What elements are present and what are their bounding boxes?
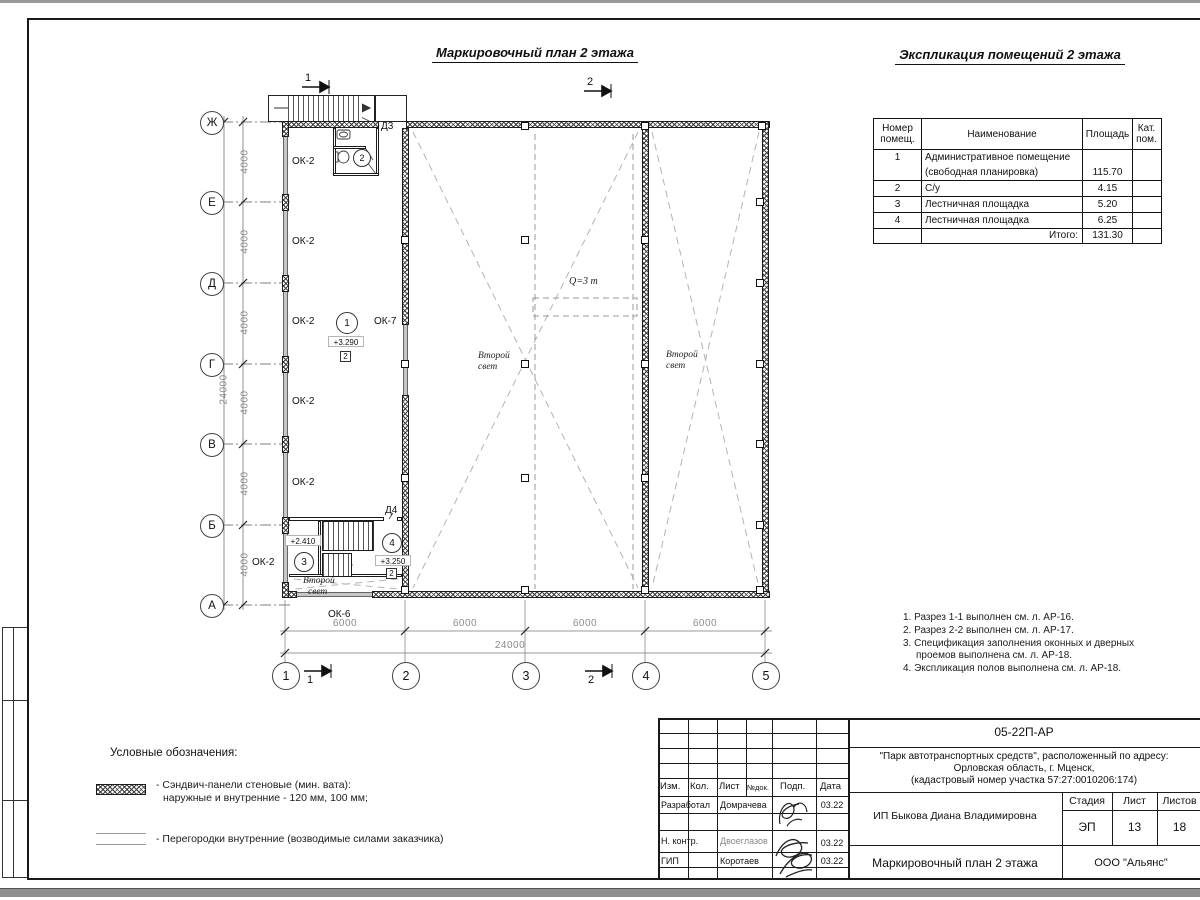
second-light-label: Второй [666, 350, 698, 360]
role-gip: ГИП [661, 856, 679, 866]
column [521, 360, 529, 368]
note-line: 4. Экспликация полов выполнена см. л. АР… [903, 663, 1200, 676]
room-tag-2: 2 [353, 149, 371, 167]
column [521, 586, 529, 594]
stage-value: ЭП [1062, 820, 1112, 834]
window-ok2 [283, 453, 288, 517]
dim-6000: 6000 [563, 618, 607, 629]
dim-total-horizontal: 24000 [488, 640, 532, 651]
titleblock-line [658, 830, 848, 831]
role-developer: Разработал [661, 800, 710, 810]
level-mark: +3.250 [375, 555, 411, 566]
column [521, 236, 529, 244]
section-mark-2: 2 [588, 674, 594, 686]
exterior-stair-treads [288, 95, 362, 122]
window-label-ok2: ОК-2 [292, 156, 315, 167]
stair-upper-flight [322, 521, 373, 551]
room-tag-4: 4 [382, 533, 402, 553]
column [756, 440, 764, 448]
floor-type-tag: 2 [386, 568, 397, 579]
signature-gip [776, 840, 812, 877]
notes-block: 1. Разрез 1-1 выполнен см. л. АР-16. 2. … [903, 612, 1200, 676]
wall-left-pier [282, 436, 289, 453]
axis-col-2: 2 [392, 662, 420, 690]
titleblock-line [1062, 810, 1200, 811]
titleblock-line [848, 792, 1200, 793]
axis-row-d: Д [200, 272, 224, 296]
column [641, 474, 649, 482]
legend-swatch-partition [96, 833, 146, 845]
window-label-ok2: ОК-2 [292, 236, 315, 247]
date-developer: 03.22 [816, 800, 848, 810]
dim-4000: 4000 [240, 220, 251, 264]
dim-6000: 6000 [683, 618, 727, 629]
header-list: Лист [719, 781, 740, 792]
titleblock-line [717, 718, 718, 880]
door-label-d3: Д3 [381, 121, 393, 132]
window-label-ok2: ОК-2 [252, 557, 275, 568]
titleblock-line [848, 845, 1200, 846]
column [401, 360, 409, 368]
company-name: ООО "Альянс" [1062, 857, 1200, 869]
project-line: "Парк автотранспортных средств", располо… [848, 751, 1200, 762]
col-header-num: Номерпомещ. [874, 119, 921, 149]
sink-icon [337, 130, 350, 139]
wall-bottom [372, 591, 770, 598]
column [641, 236, 649, 244]
axis-col-3: 3 [512, 662, 540, 690]
section-mark-1: 1 [307, 674, 313, 686]
table-total-row: Итого: 131.30 [874, 228, 1161, 243]
wall-left-pier [282, 356, 289, 373]
note-line: 1. Разрез 1-1 выполнен см. л. АР-16. [903, 612, 1200, 625]
name-developer: Домрачева [720, 800, 767, 810]
note-line: 2. Разрез 2-2 выполнен см. л. АР-17. [903, 625, 1200, 638]
header-sign: Подп. [780, 781, 805, 792]
axis-col-1: 1 [272, 662, 300, 690]
column [521, 122, 529, 130]
role-ncontrol: Н. контр. [661, 836, 698, 846]
wall-axis2-upper [402, 128, 409, 325]
axis-row-b: Б [200, 514, 224, 538]
drawing-title: Маркировочный план 2 этажа [848, 856, 1062, 870]
signature-developer [779, 803, 807, 826]
titleblock-line [658, 867, 848, 868]
column [401, 586, 409, 594]
legend-item-sandwich: - Сэндвич-панели стеновые (мин. вата): н… [156, 779, 368, 804]
column [641, 122, 649, 130]
dim-total-vertical: 24000 [219, 368, 230, 412]
room-tag-1: 1 [336, 312, 358, 334]
stairhall-partition-stub [397, 517, 402, 521]
level-mark: +2.410 [285, 535, 321, 546]
window-ok2 [283, 211, 288, 275]
level-mark: +3.290 [328, 336, 364, 347]
wall-top-right [406, 121, 770, 128]
axis-col-5: 5 [752, 662, 780, 690]
window-label-ok7: ОК-7 [374, 316, 397, 327]
project-line: (кадастровый номер участка 57:27:0010206… [848, 775, 1200, 786]
dim-4000: 4000 [240, 381, 251, 425]
window-label-ok2: ОК-2 [292, 316, 315, 327]
header-date: Дата [820, 781, 841, 792]
bathroom-wall-right [376, 128, 379, 176]
table-header-row: Номерпомещ. Наименование Площадь Кат.пом… [874, 119, 1161, 149]
window-label-ok2: ОК-2 [292, 396, 315, 407]
door-label-d4: Д4 [385, 505, 397, 516]
dimension-lines [224, 116, 772, 653]
window-label-ok6: ОК-6 [328, 609, 351, 620]
axis-row-a: А [200, 594, 224, 618]
stair-landing-line [373, 521, 374, 551]
titleblock-line [658, 718, 660, 880]
sheets-total: 18 [1157, 820, 1200, 834]
titleblock-line [658, 813, 848, 814]
second-light-label: Второй [478, 351, 510, 361]
table-row: (свободная планировка) 115.70 [874, 165, 1161, 180]
column [756, 521, 764, 529]
column [756, 360, 764, 368]
stairhall-partition-vert [318, 521, 321, 577]
col-header-area: Площадь [1082, 119, 1132, 149]
wall-left-pier [282, 121, 289, 137]
titleblock-line [772, 718, 773, 880]
second-light-label: свет [478, 362, 497, 372]
column [641, 586, 649, 594]
note-line: 3. Спецификация заполнения оконных и две… [903, 638, 1200, 651]
note-line: проемов выполнена см. л. АР-18. [903, 650, 1200, 663]
wall-left-pier [282, 194, 289, 211]
axis-row-v: В [200, 433, 224, 457]
titleblock-line [658, 748, 848, 749]
column [756, 279, 764, 287]
axis-row-zh: Ж [200, 111, 224, 135]
stair-lower-flight [322, 553, 352, 577]
section-marks [302, 80, 612, 678]
second-light-label: свет [666, 361, 685, 371]
stage-label: Стадия [1062, 795, 1112, 807]
bathroom-wall-bottom [333, 173, 379, 176]
dim-6000: 6000 [443, 618, 487, 629]
date-gip: 03.22 [816, 856, 848, 866]
legend-title: Условные обозначения: [110, 747, 237, 759]
wall-left-pier [282, 582, 289, 598]
document-code: 05-22П-АР [848, 725, 1200, 739]
bathroom-wall-left [333, 128, 336, 176]
header-doc: №док. [747, 783, 769, 792]
window-ok2 [283, 373, 288, 436]
axis-col-4: 4 [632, 662, 660, 690]
window-ok2 [283, 292, 288, 356]
titleblock-line [658, 796, 848, 797]
wall-left-pier [282, 517, 289, 534]
name-gip: Коротаев [720, 856, 759, 866]
project-line: Орловская область, г. Мценск, [848, 763, 1200, 774]
section-mark-2: 2 [587, 76, 593, 88]
col-header-name: Наименование [921, 119, 1082, 149]
table-row: 2С/у 4.15 [874, 180, 1161, 196]
titleblock-line [688, 718, 689, 880]
window-ok2 [283, 137, 288, 194]
legend-swatch-sandwich [96, 784, 146, 795]
client-name: ИП Быкова Диана Владимировна [848, 810, 1062, 822]
second-light-label: свет [308, 587, 327, 597]
window-label-ok2: ОК-2 [292, 477, 315, 488]
column [401, 474, 409, 482]
titleblock-line [658, 733, 848, 734]
column [641, 360, 649, 368]
toilet-icon [334, 151, 349, 163]
column [756, 198, 764, 206]
sheet-label: Лист [1112, 795, 1157, 807]
column [401, 236, 409, 244]
name-ncontrol: Двоеглазов [720, 836, 768, 846]
dim-4000: 4000 [240, 140, 251, 184]
titleblock-line [658, 718, 1200, 720]
floor-type-tag: 2 [340, 351, 351, 362]
column [758, 122, 766, 130]
wall-top-left [285, 121, 379, 128]
titleblock-line [658, 763, 848, 764]
titleblock-line [658, 852, 848, 853]
drawing-sheet: Маркировочный план 2 этажа Экспликация п… [0, 0, 1200, 900]
stair-platform [375, 95, 407, 122]
table-row: 1Административное помещение [874, 149, 1161, 165]
dim-4000: 4000 [240, 301, 251, 345]
axis-row-e: Е [200, 191, 224, 215]
wall-left-pier [282, 275, 289, 292]
second-light-label: Второй [303, 576, 335, 586]
date-ncontrol: 03.22 [816, 838, 848, 848]
explication-table: Номерпомещ. Наименование Площадь Кат.пом… [873, 118, 1162, 244]
legend-item-partition: - Перегородки внутренние (возводимые сил… [156, 833, 444, 846]
crane-lines [533, 134, 637, 589]
titleblock-line [658, 778, 848, 779]
table-row: 3Лестничная площадка 5.20 [874, 196, 1161, 212]
titleblock-line [848, 747, 1200, 748]
dim-4000: 4000 [240, 462, 251, 506]
dim-4000: 4000 [240, 543, 251, 587]
sheet-number: 13 [1112, 820, 1157, 834]
room-tag-3: 3 [294, 552, 314, 572]
table-row: 4Лестничная площадка 6.25 [874, 212, 1161, 228]
sheets-label: Листов [1157, 795, 1200, 807]
header-izm: Изм. [660, 781, 680, 792]
header-kol: Кол. [690, 781, 709, 792]
section-mark-1: 1 [305, 72, 311, 84]
column [756, 586, 764, 594]
column [521, 474, 529, 482]
crane-capacity-label: Q=3 т [569, 276, 598, 287]
col-header-cat: Кат.пом. [1132, 119, 1160, 149]
